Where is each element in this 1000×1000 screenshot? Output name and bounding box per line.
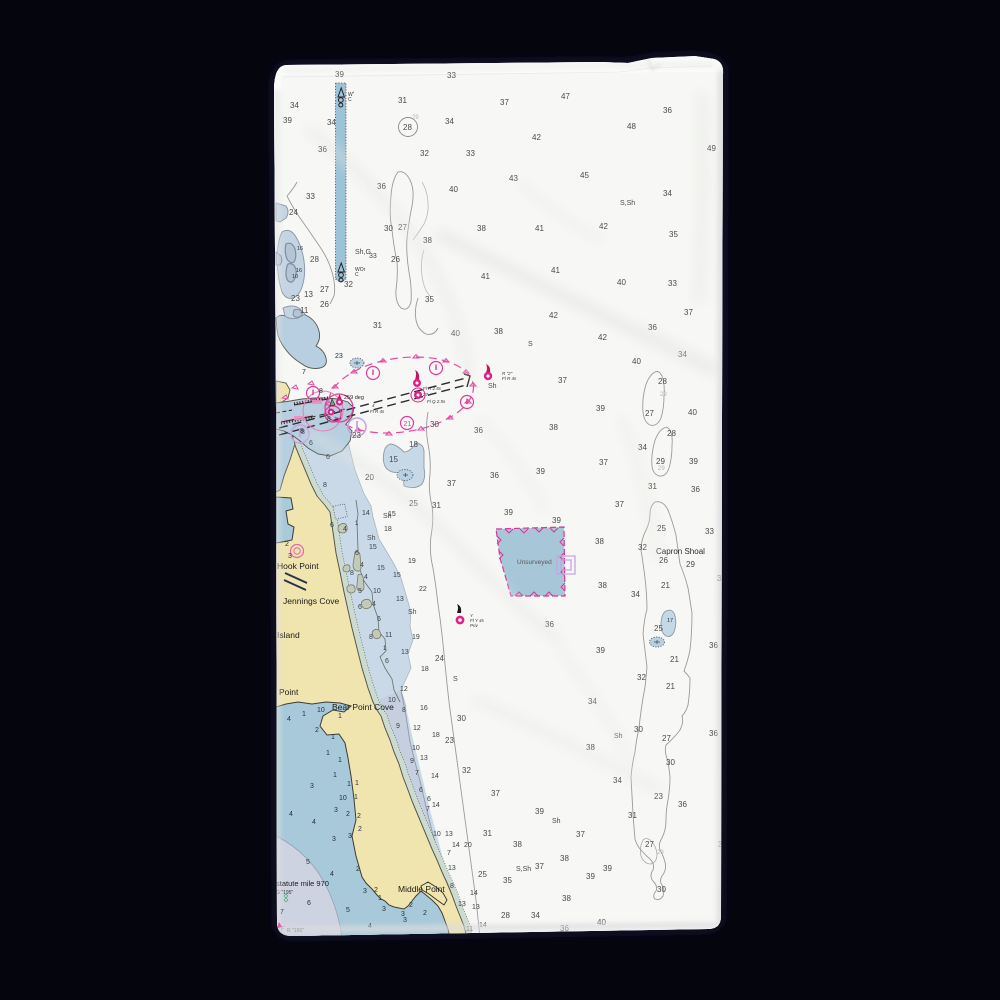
svg-text:39: 39 bbox=[689, 457, 698, 466]
svg-text:9: 9 bbox=[396, 723, 400, 730]
svg-text:Sh: Sh bbox=[488, 383, 497, 390]
svg-text:34: 34 bbox=[613, 776, 622, 785]
svg-text:39: 39 bbox=[535, 807, 544, 816]
svg-text:36: 36 bbox=[474, 426, 483, 435]
svg-text:28: 28 bbox=[310, 255, 319, 264]
svg-text:22: 22 bbox=[419, 586, 427, 593]
svg-text:37: 37 bbox=[684, 308, 693, 317]
svg-text:5: 5 bbox=[358, 588, 362, 595]
svg-text:11: 11 bbox=[385, 632, 392, 639]
svg-text:24: 24 bbox=[435, 654, 444, 663]
svg-text:10: 10 bbox=[373, 588, 381, 595]
svg-text:36: 36 bbox=[691, 485, 700, 494]
svg-text:41: 41 bbox=[481, 272, 490, 281]
svg-text:C: C bbox=[348, 97, 352, 103]
svg-text:29: 29 bbox=[686, 560, 695, 569]
svg-text:33: 33 bbox=[447, 71, 456, 80]
svg-text:38: 38 bbox=[513, 840, 522, 849]
svg-text:15: 15 bbox=[369, 544, 377, 551]
svg-text:26: 26 bbox=[320, 300, 329, 309]
svg-text:Fl R 4s: Fl R 4s bbox=[370, 409, 385, 414]
svg-text:42: 42 bbox=[532, 133, 541, 142]
svg-text:39: 39 bbox=[335, 70, 344, 79]
svg-text:2: 2 bbox=[374, 887, 378, 894]
svg-text:29: 29 bbox=[658, 466, 665, 472]
svg-text:30: 30 bbox=[657, 885, 666, 894]
svg-text:28: 28 bbox=[403, 123, 412, 132]
svg-text:12: 12 bbox=[400, 686, 408, 693]
svg-text:47: 47 bbox=[561, 92, 570, 101]
svg-text:45: 45 bbox=[580, 171, 589, 180]
svg-text:2: 2 bbox=[409, 902, 413, 909]
svg-text:10: 10 bbox=[317, 707, 325, 714]
svg-text:259 deg: 259 deg bbox=[344, 395, 364, 401]
svg-text:Fl R 4s: Fl R 4s bbox=[502, 376, 517, 381]
svg-text:38: 38 bbox=[562, 894, 571, 903]
svg-text:6: 6 bbox=[385, 658, 389, 665]
svg-text:1: 1 bbox=[331, 734, 335, 741]
svg-text:14: 14 bbox=[362, 510, 370, 517]
svg-text:21: 21 bbox=[404, 421, 412, 428]
svg-text:42: 42 bbox=[599, 222, 608, 231]
svg-text:Capron Shoal: Capron Shoal bbox=[656, 547, 705, 556]
svg-text:35: 35 bbox=[503, 876, 512, 885]
svg-text:28: 28 bbox=[501, 911, 510, 920]
svg-text:Bear Point Cove: Bear Point Cove bbox=[332, 702, 394, 712]
svg-text:23: 23 bbox=[291, 294, 300, 303]
svg-text:19: 19 bbox=[408, 558, 416, 565]
svg-text:30: 30 bbox=[666, 758, 675, 767]
svg-text:34: 34 bbox=[631, 590, 640, 599]
svg-text:2: 2 bbox=[315, 727, 319, 734]
svg-text:7: 7 bbox=[426, 806, 430, 813]
svg-text:2: 2 bbox=[356, 866, 360, 873]
svg-text:23: 23 bbox=[352, 431, 361, 440]
svg-text:8: 8 bbox=[319, 388, 323, 395]
svg-text:8: 8 bbox=[300, 428, 304, 435]
svg-text:16: 16 bbox=[420, 705, 428, 712]
svg-text:15: 15 bbox=[388, 511, 396, 518]
svg-text:9: 9 bbox=[410, 758, 414, 765]
svg-text:3: 3 bbox=[403, 917, 407, 924]
svg-text:21: 21 bbox=[661, 581, 670, 590]
svg-text:1: 1 bbox=[378, 895, 382, 902]
svg-text:Island: Island bbox=[277, 630, 300, 640]
svg-text:14: 14 bbox=[432, 802, 440, 809]
svg-text:13: 13 bbox=[445, 831, 453, 838]
svg-text:6: 6 bbox=[307, 900, 311, 907]
svg-text:37: 37 bbox=[576, 830, 585, 839]
svg-text:14: 14 bbox=[431, 773, 439, 780]
svg-text:42: 42 bbox=[549, 311, 558, 320]
svg-text:7: 7 bbox=[302, 369, 306, 376]
svg-text:7: 7 bbox=[280, 909, 284, 916]
svg-text:37: 37 bbox=[447, 479, 456, 488]
svg-text:S,Sh: S,Sh bbox=[516, 866, 531, 873]
svg-text:Fl Q 2.5s: Fl Q 2.5s bbox=[427, 399, 446, 404]
svg-text:4: 4 bbox=[343, 526, 347, 533]
svg-text:37: 37 bbox=[535, 862, 544, 871]
svg-text:5: 5 bbox=[306, 859, 310, 866]
svg-text:6: 6 bbox=[309, 440, 313, 447]
svg-text:13: 13 bbox=[401, 649, 409, 656]
svg-text:25: 25 bbox=[478, 870, 487, 879]
svg-text:41: 41 bbox=[551, 266, 560, 275]
svg-text:6: 6 bbox=[427, 796, 431, 803]
svg-text:38: 38 bbox=[494, 327, 503, 336]
svg-text:38: 38 bbox=[598, 581, 607, 590]
svg-text:49: 49 bbox=[707, 144, 716, 153]
svg-text:1: 1 bbox=[354, 794, 358, 801]
svg-text:38: 38 bbox=[560, 854, 569, 863]
svg-text:39: 39 bbox=[586, 872, 595, 881]
svg-text:30: 30 bbox=[384, 224, 393, 233]
svg-text:34: 34 bbox=[663, 189, 672, 198]
svg-text:29: 29 bbox=[660, 392, 667, 398]
svg-text:8: 8 bbox=[327, 416, 331, 423]
svg-text:40: 40 bbox=[449, 185, 458, 194]
svg-text:13: 13 bbox=[448, 865, 456, 872]
svg-text:8: 8 bbox=[450, 883, 454, 890]
svg-text:15: 15 bbox=[393, 572, 401, 579]
svg-text:19: 19 bbox=[412, 634, 420, 641]
svg-text:26: 26 bbox=[659, 556, 668, 565]
svg-text:29: 29 bbox=[656, 457, 665, 466]
svg-text:3: 3 bbox=[348, 833, 352, 840]
svg-text:3: 3 bbox=[363, 888, 367, 895]
svg-text:6: 6 bbox=[377, 616, 381, 623]
svg-text:3: 3 bbox=[310, 783, 314, 790]
svg-text:S: S bbox=[453, 676, 458, 683]
svg-text:1: 1 bbox=[347, 781, 351, 788]
svg-text:32: 32 bbox=[637, 673, 646, 682]
svg-text:38: 38 bbox=[477, 224, 486, 233]
svg-text:8: 8 bbox=[323, 482, 327, 489]
svg-text:21: 21 bbox=[666, 682, 675, 691]
svg-text:Hook Point: Hook Point bbox=[277, 561, 319, 571]
svg-text:6: 6 bbox=[330, 522, 334, 529]
svg-text:13: 13 bbox=[396, 596, 404, 603]
svg-text:5: 5 bbox=[346, 907, 350, 914]
svg-text:Jennings Cove: Jennings Cove bbox=[283, 596, 340, 606]
svg-text:1: 1 bbox=[338, 757, 342, 764]
svg-text:34: 34 bbox=[290, 101, 299, 110]
svg-text:37: 37 bbox=[558, 376, 567, 385]
svg-text:13: 13 bbox=[458, 901, 466, 908]
svg-text:33: 33 bbox=[668, 279, 677, 288]
svg-text:32: 32 bbox=[638, 543, 647, 552]
svg-text:6: 6 bbox=[358, 604, 362, 611]
svg-text:37: 37 bbox=[615, 500, 624, 509]
svg-text:31: 31 bbox=[628, 811, 637, 820]
svg-text:39: 39 bbox=[596, 404, 605, 413]
svg-text:11: 11 bbox=[300, 306, 309, 315]
svg-text:1: 1 bbox=[338, 713, 342, 720]
svg-text:33: 33 bbox=[705, 527, 714, 536]
svg-text:4: 4 bbox=[287, 716, 291, 723]
svg-text:30: 30 bbox=[430, 420, 439, 429]
svg-text:18: 18 bbox=[409, 440, 418, 449]
svg-text:31: 31 bbox=[648, 482, 657, 491]
svg-text:1: 1 bbox=[326, 750, 330, 757]
svg-text:35: 35 bbox=[425, 295, 434, 304]
svg-text:36: 36 bbox=[709, 641, 718, 650]
svg-text:4: 4 bbox=[312, 819, 316, 826]
svg-text:38: 38 bbox=[549, 423, 558, 432]
svg-text:1: 1 bbox=[355, 780, 359, 787]
svg-text:2: 2 bbox=[285, 541, 289, 548]
svg-text:10: 10 bbox=[339, 795, 347, 802]
svg-text:20: 20 bbox=[464, 842, 472, 849]
svg-text:29: 29 bbox=[412, 115, 419, 121]
svg-text:28: 28 bbox=[658, 377, 667, 386]
svg-text:Priv: Priv bbox=[470, 623, 478, 628]
svg-text:36: 36 bbox=[709, 729, 718, 738]
svg-text:S,Sh: S,Sh bbox=[620, 200, 635, 207]
svg-text:39: 39 bbox=[504, 508, 513, 517]
svg-text:3: 3 bbox=[288, 553, 292, 560]
svg-text:30: 30 bbox=[634, 725, 643, 734]
svg-text:28: 28 bbox=[667, 429, 676, 438]
svg-text:6: 6 bbox=[419, 787, 423, 794]
svg-text:35: 35 bbox=[669, 230, 678, 239]
svg-text:31: 31 bbox=[398, 96, 407, 105]
svg-text:15: 15 bbox=[389, 455, 398, 464]
svg-text:Middle Point: Middle Point bbox=[398, 884, 445, 894]
svg-text:10: 10 bbox=[388, 697, 396, 704]
svg-text:34: 34 bbox=[445, 117, 454, 126]
svg-text:37: 37 bbox=[599, 458, 608, 467]
svg-text:30: 30 bbox=[457, 714, 466, 723]
svg-text:32: 32 bbox=[344, 280, 353, 289]
svg-text:37: 37 bbox=[500, 98, 509, 107]
svg-text:2: 2 bbox=[423, 910, 427, 917]
svg-text:4: 4 bbox=[360, 562, 364, 569]
svg-text:13: 13 bbox=[304, 290, 313, 299]
svg-text:41: 41 bbox=[535, 224, 544, 233]
svg-text:13: 13 bbox=[420, 755, 428, 762]
svg-text:37: 37 bbox=[491, 789, 500, 798]
svg-text:27: 27 bbox=[422, 392, 429, 397]
svg-text:36: 36 bbox=[648, 323, 657, 332]
svg-text:33: 33 bbox=[369, 253, 377, 260]
svg-text:3: 3 bbox=[334, 807, 338, 814]
svg-text:31: 31 bbox=[373, 321, 382, 330]
svg-text:4: 4 bbox=[330, 871, 334, 878]
svg-text:8: 8 bbox=[369, 634, 373, 641]
svg-text:3: 3 bbox=[382, 906, 386, 913]
svg-text:31: 31 bbox=[432, 501, 441, 510]
svg-text:15: 15 bbox=[377, 565, 385, 572]
svg-text:38: 38 bbox=[595, 537, 604, 546]
svg-text:6: 6 bbox=[355, 550, 359, 557]
svg-text:24: 24 bbox=[289, 208, 298, 217]
svg-text:4: 4 bbox=[364, 574, 368, 581]
svg-text:32: 32 bbox=[462, 766, 471, 775]
svg-text:10: 10 bbox=[292, 274, 298, 280]
svg-text:29: 29 bbox=[657, 850, 664, 856]
svg-text:21: 21 bbox=[670, 655, 679, 664]
svg-text:27: 27 bbox=[645, 409, 654, 418]
svg-text:2: 2 bbox=[358, 826, 362, 833]
svg-text:8: 8 bbox=[402, 707, 406, 714]
svg-text:12: 12 bbox=[413, 725, 421, 732]
svg-text:34: 34 bbox=[531, 911, 540, 920]
svg-text:13: 13 bbox=[472, 904, 480, 911]
svg-text:8: 8 bbox=[350, 570, 354, 577]
svg-text:36: 36 bbox=[678, 800, 687, 809]
svg-text:4: 4 bbox=[372, 601, 376, 608]
svg-text:27: 27 bbox=[662, 734, 671, 743]
svg-text:39: 39 bbox=[552, 516, 561, 525]
svg-text:7: 7 bbox=[447, 850, 451, 857]
svg-text:14: 14 bbox=[452, 842, 460, 849]
svg-text:Sh: Sh bbox=[552, 818, 561, 825]
svg-text:6: 6 bbox=[326, 454, 330, 461]
svg-text:4: 4 bbox=[289, 811, 293, 818]
svg-text:S: S bbox=[528, 341, 533, 348]
svg-text:42: 42 bbox=[598, 333, 607, 342]
svg-text:40: 40 bbox=[617, 278, 626, 287]
svg-text:C: C bbox=[355, 272, 359, 278]
svg-text:48: 48 bbox=[627, 122, 636, 131]
svg-text:26: 26 bbox=[391, 255, 400, 264]
svg-text:10: 10 bbox=[433, 831, 441, 838]
svg-text:27: 27 bbox=[645, 840, 654, 849]
svg-text:39: 39 bbox=[603, 864, 612, 873]
svg-text:14: 14 bbox=[470, 890, 478, 897]
svg-text:25: 25 bbox=[657, 524, 666, 533]
svg-text:27: 27 bbox=[320, 285, 329, 294]
svg-text:39: 39 bbox=[596, 646, 605, 655]
svg-text:2: 2 bbox=[357, 813, 361, 820]
svg-text:Point: Point bbox=[279, 687, 299, 697]
svg-text:7: 7 bbox=[415, 770, 419, 777]
svg-text:1: 1 bbox=[302, 711, 306, 718]
svg-text:18: 18 bbox=[421, 666, 429, 673]
svg-text:34: 34 bbox=[327, 118, 336, 127]
svg-text:17: 17 bbox=[667, 618, 673, 624]
svg-text:23: 23 bbox=[335, 353, 343, 360]
svg-text:1: 1 bbox=[333, 772, 337, 779]
svg-text:39: 39 bbox=[536, 467, 545, 476]
svg-text:23: 23 bbox=[445, 736, 454, 745]
svg-text:Sh: Sh bbox=[367, 535, 376, 542]
svg-text:10: 10 bbox=[412, 745, 420, 752]
svg-text:3: 3 bbox=[332, 836, 336, 843]
svg-text:40: 40 bbox=[632, 357, 641, 366]
svg-text:Sh: Sh bbox=[408, 609, 417, 616]
svg-text:18: 18 bbox=[432, 732, 440, 739]
svg-text:33: 33 bbox=[466, 149, 475, 158]
svg-text:36: 36 bbox=[663, 106, 672, 115]
svg-text:2: 2 bbox=[346, 811, 350, 818]
svg-text:34: 34 bbox=[638, 443, 647, 452]
svg-text:40: 40 bbox=[688, 408, 697, 417]
svg-text:38: 38 bbox=[423, 236, 432, 245]
svg-text:16: 16 bbox=[297, 246, 303, 252]
svg-text:Unsurveyed: Unsurveyed bbox=[517, 559, 552, 566]
svg-text:36: 36 bbox=[490, 471, 499, 480]
svg-text:18: 18 bbox=[384, 526, 392, 533]
svg-text:33: 33 bbox=[306, 192, 315, 201]
svg-text:32: 32 bbox=[420, 149, 429, 158]
svg-text:statute mile 970: statute mile 970 bbox=[276, 879, 329, 888]
svg-text:Fl R 2.5s: Fl R 2.5s bbox=[423, 386, 442, 391]
svg-text:25: 25 bbox=[654, 624, 663, 633]
svg-text:39: 39 bbox=[283, 116, 292, 125]
svg-text:31: 31 bbox=[483, 829, 492, 838]
